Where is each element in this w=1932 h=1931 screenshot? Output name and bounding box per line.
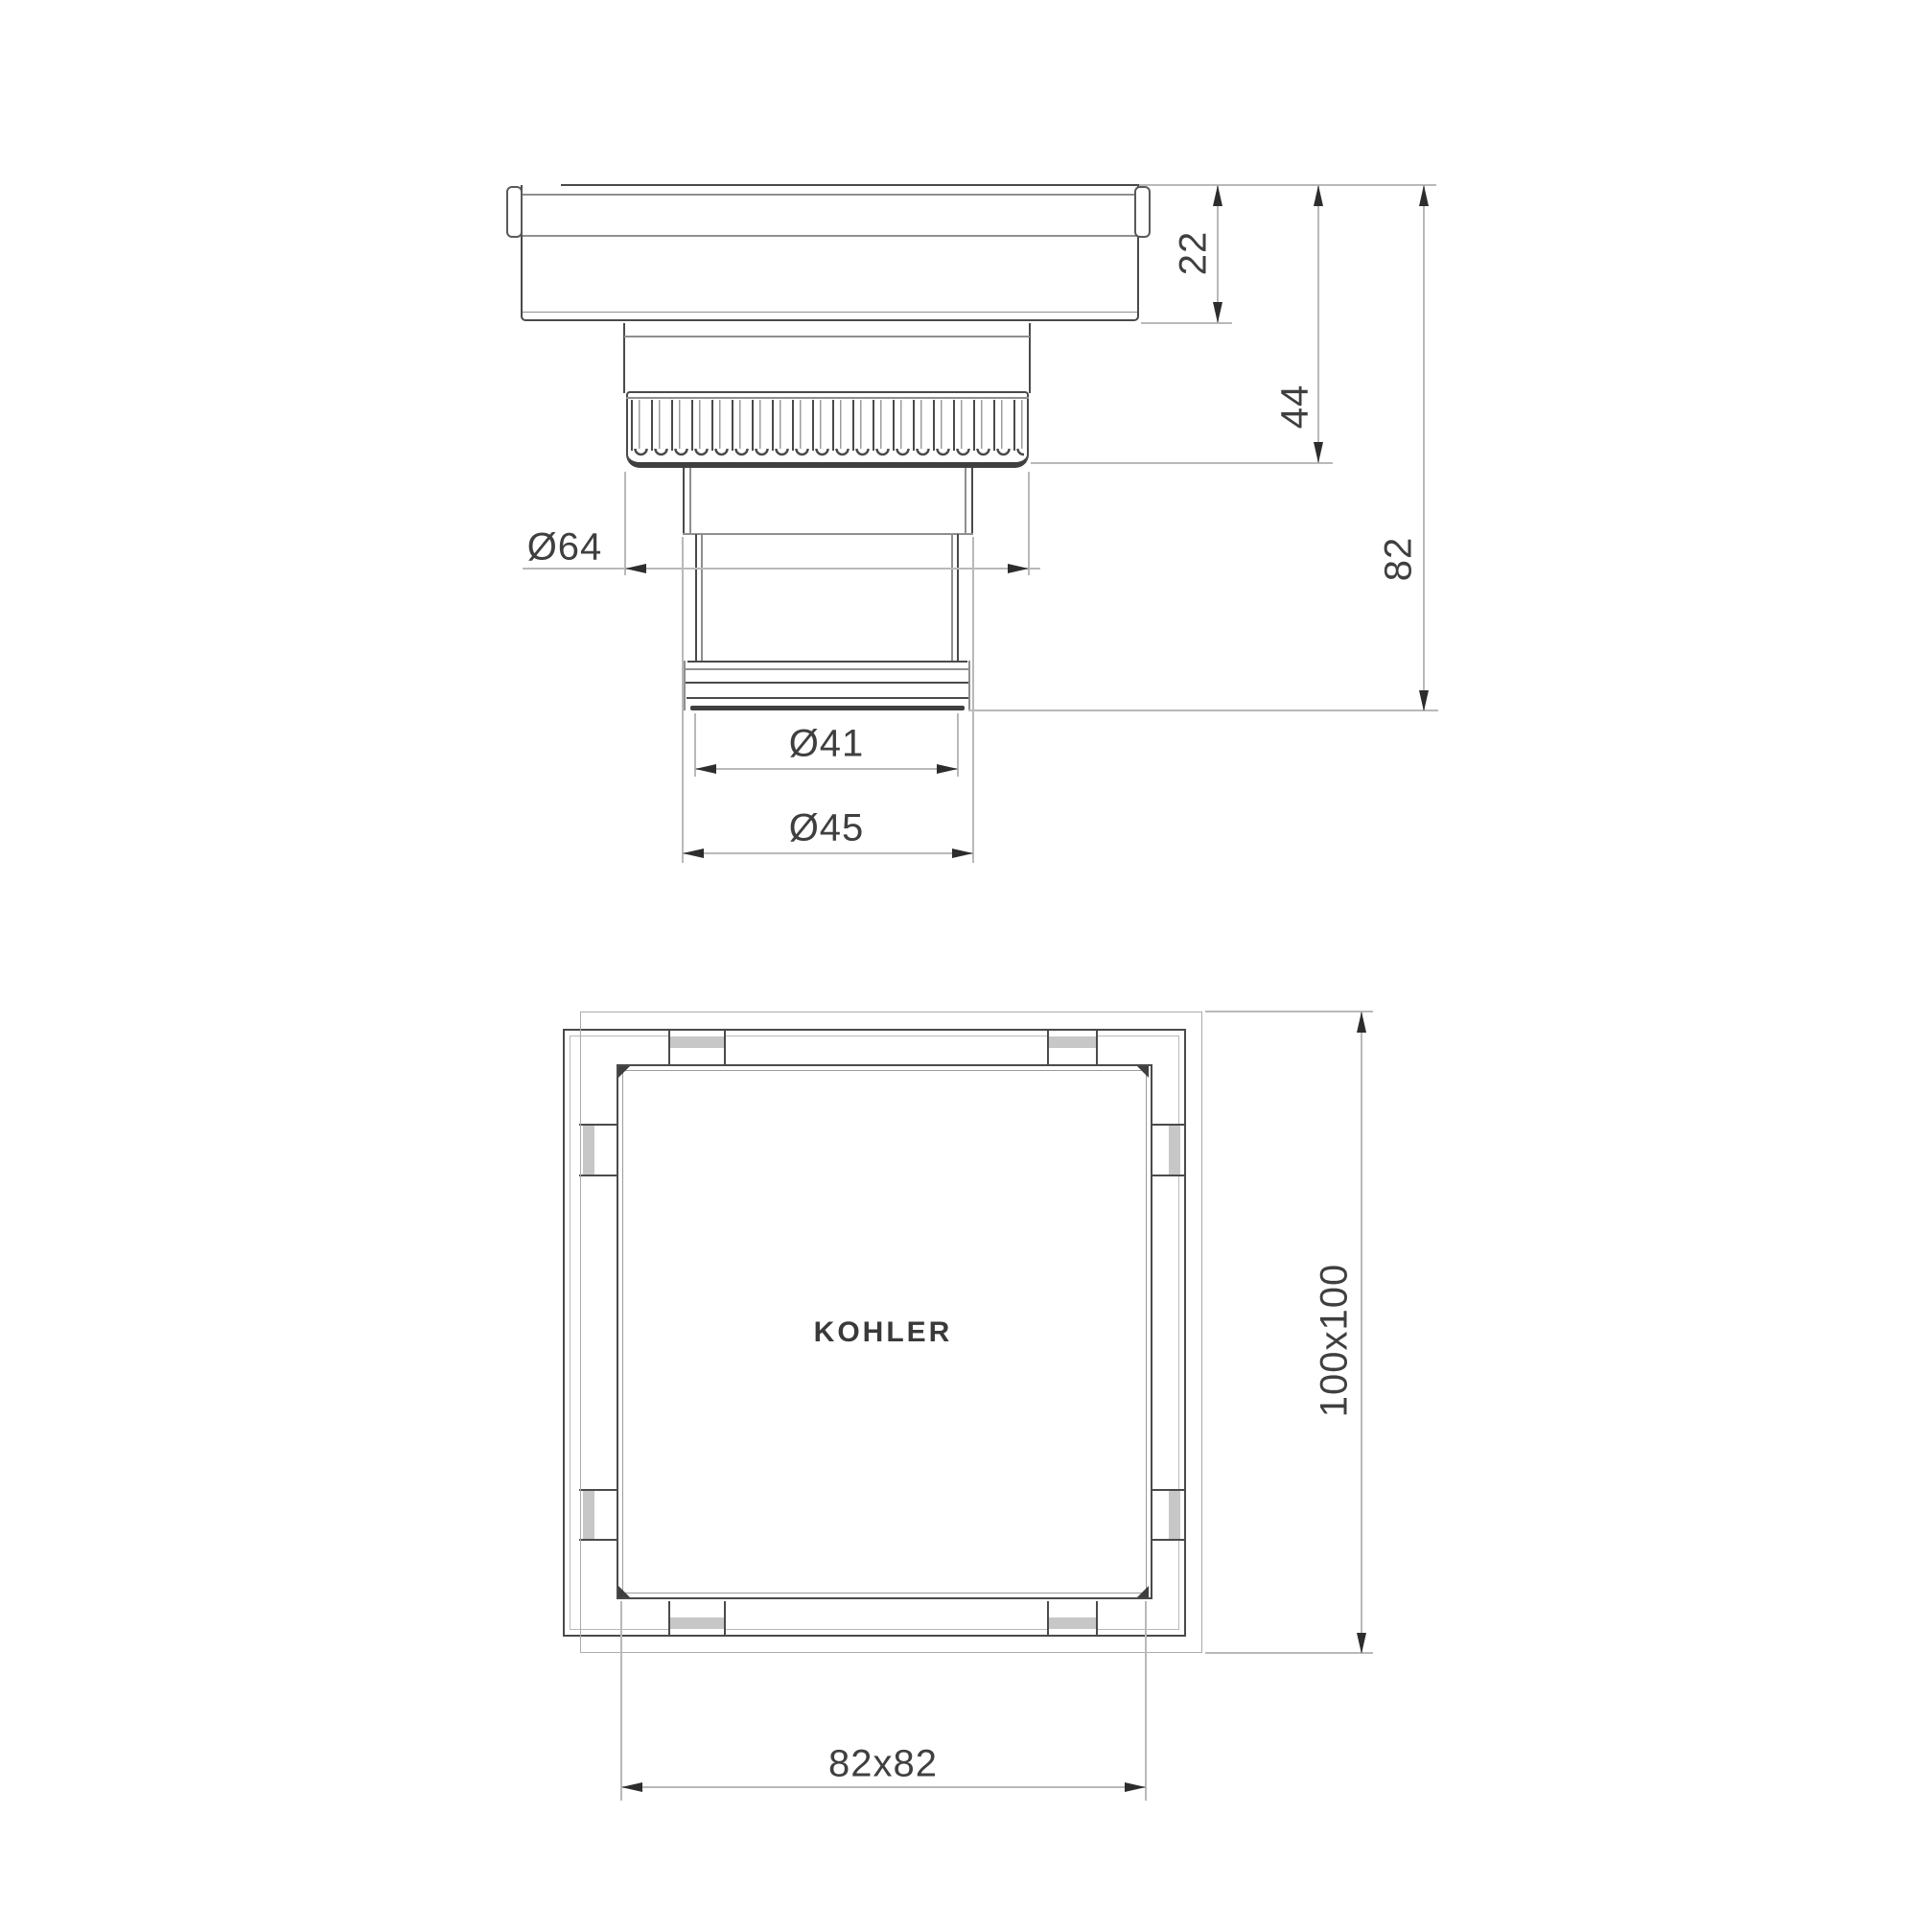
extension-line-outlet-right xyxy=(972,537,974,863)
pipe45-right-wall xyxy=(971,468,973,535)
dimension-label-22: 22 xyxy=(1173,231,1216,276)
extension-line-grate-left xyxy=(620,1601,622,1801)
arrow-left-icon xyxy=(683,849,704,858)
gasket-right-edge xyxy=(968,661,970,710)
arrow-right-icon xyxy=(1008,564,1029,573)
arrow-up-icon xyxy=(1357,1012,1366,1033)
extension-line-top xyxy=(1139,184,1436,186)
arrow-right-icon xyxy=(937,764,958,774)
gasket-ring-line-4 xyxy=(687,697,968,699)
arrow-left-icon xyxy=(621,1782,642,1792)
arrow-down-icon xyxy=(1357,1633,1366,1654)
pipe45-right-wall-inner xyxy=(965,468,966,535)
arrow-up-icon xyxy=(1213,185,1222,206)
dimension-line-100x100 xyxy=(1361,1012,1362,1654)
dimension-label-dia41: Ø41 xyxy=(789,723,865,766)
dimension-line-82 xyxy=(1423,185,1425,711)
extension-line-frame-top xyxy=(1205,1011,1373,1012)
arrow-down-icon xyxy=(1213,302,1222,323)
arrow-right-icon xyxy=(952,849,973,858)
pipe-shoulder-line xyxy=(683,533,973,535)
dimension-label-dia45: Ø45 xyxy=(789,807,865,850)
flange-top-edge-line xyxy=(561,184,1139,186)
gasket-left-edge xyxy=(684,661,686,710)
gasket-ring-line-3 xyxy=(685,682,970,684)
neck-left-edge xyxy=(623,323,625,393)
dimension-line-82x82 xyxy=(621,1786,1146,1788)
extension-line-outlet-left xyxy=(682,537,684,863)
arrow-left-icon xyxy=(695,764,716,774)
pipe45-left-wall-inner xyxy=(689,468,691,535)
knurl-teeth-pattern xyxy=(631,400,1024,451)
neck-step-line xyxy=(624,336,1030,337)
flange-right-clip xyxy=(1134,186,1151,238)
dimension-line-dia45 xyxy=(683,852,973,854)
arrow-right-icon xyxy=(1125,1782,1146,1792)
knurled-locking-nut xyxy=(626,391,1029,468)
pipe41-right-wall xyxy=(957,534,959,663)
extension-line-grate-right xyxy=(1145,1601,1147,1801)
arrow-left-icon xyxy=(625,564,646,573)
dimension-label-82x82: 82x82 xyxy=(828,1743,938,1786)
flange-top-inner-line xyxy=(523,194,1137,196)
extension-line-nut-left xyxy=(624,472,626,575)
arrow-up-icon xyxy=(1419,185,1429,206)
pipe41-right-wall-inner xyxy=(951,534,953,663)
pipe41-left-wall xyxy=(695,534,697,663)
knurl-top-line xyxy=(626,397,1029,399)
dimension-label-44: 44 xyxy=(1274,384,1317,430)
extension-line-nut-right xyxy=(1028,472,1030,575)
knurl-scallop-edge xyxy=(631,449,1024,462)
extension-line-nut-bottom xyxy=(1031,462,1333,464)
pipe-bottom-edge xyxy=(690,706,965,710)
flange-left-clip xyxy=(506,186,523,238)
brand-logo-text: KOHLER xyxy=(814,1316,953,1349)
gasket-ring-line-2 xyxy=(685,668,970,670)
dimension-label-100x100: 100x100 xyxy=(1314,1264,1357,1417)
flange-bottom-inner-line xyxy=(523,312,1137,314)
gasket-ring-line-1 xyxy=(687,661,967,663)
extension-line-frame-bottom xyxy=(1205,1652,1373,1654)
extension-line-pipe-bottom xyxy=(968,710,1438,711)
flange-outline xyxy=(521,185,1139,321)
arrow-down-icon xyxy=(1314,442,1323,463)
technical-drawing-canvas: 22 44 82 Ø64 Ø41 Ø45 xyxy=(0,0,1932,1931)
pipe45-left-wall xyxy=(683,468,685,535)
pipe41-left-wall-inner xyxy=(701,534,703,663)
dimension-label-82: 82 xyxy=(1378,537,1421,582)
flange-mid-line xyxy=(523,235,1137,237)
arrow-up-icon xyxy=(1314,185,1323,206)
dimension-line-dia41 xyxy=(695,768,958,770)
neck-right-edge xyxy=(1029,323,1031,393)
dimension-line-44 xyxy=(1317,185,1319,463)
arrow-down-icon xyxy=(1419,690,1429,711)
dimension-label-dia64: Ø64 xyxy=(527,526,603,570)
